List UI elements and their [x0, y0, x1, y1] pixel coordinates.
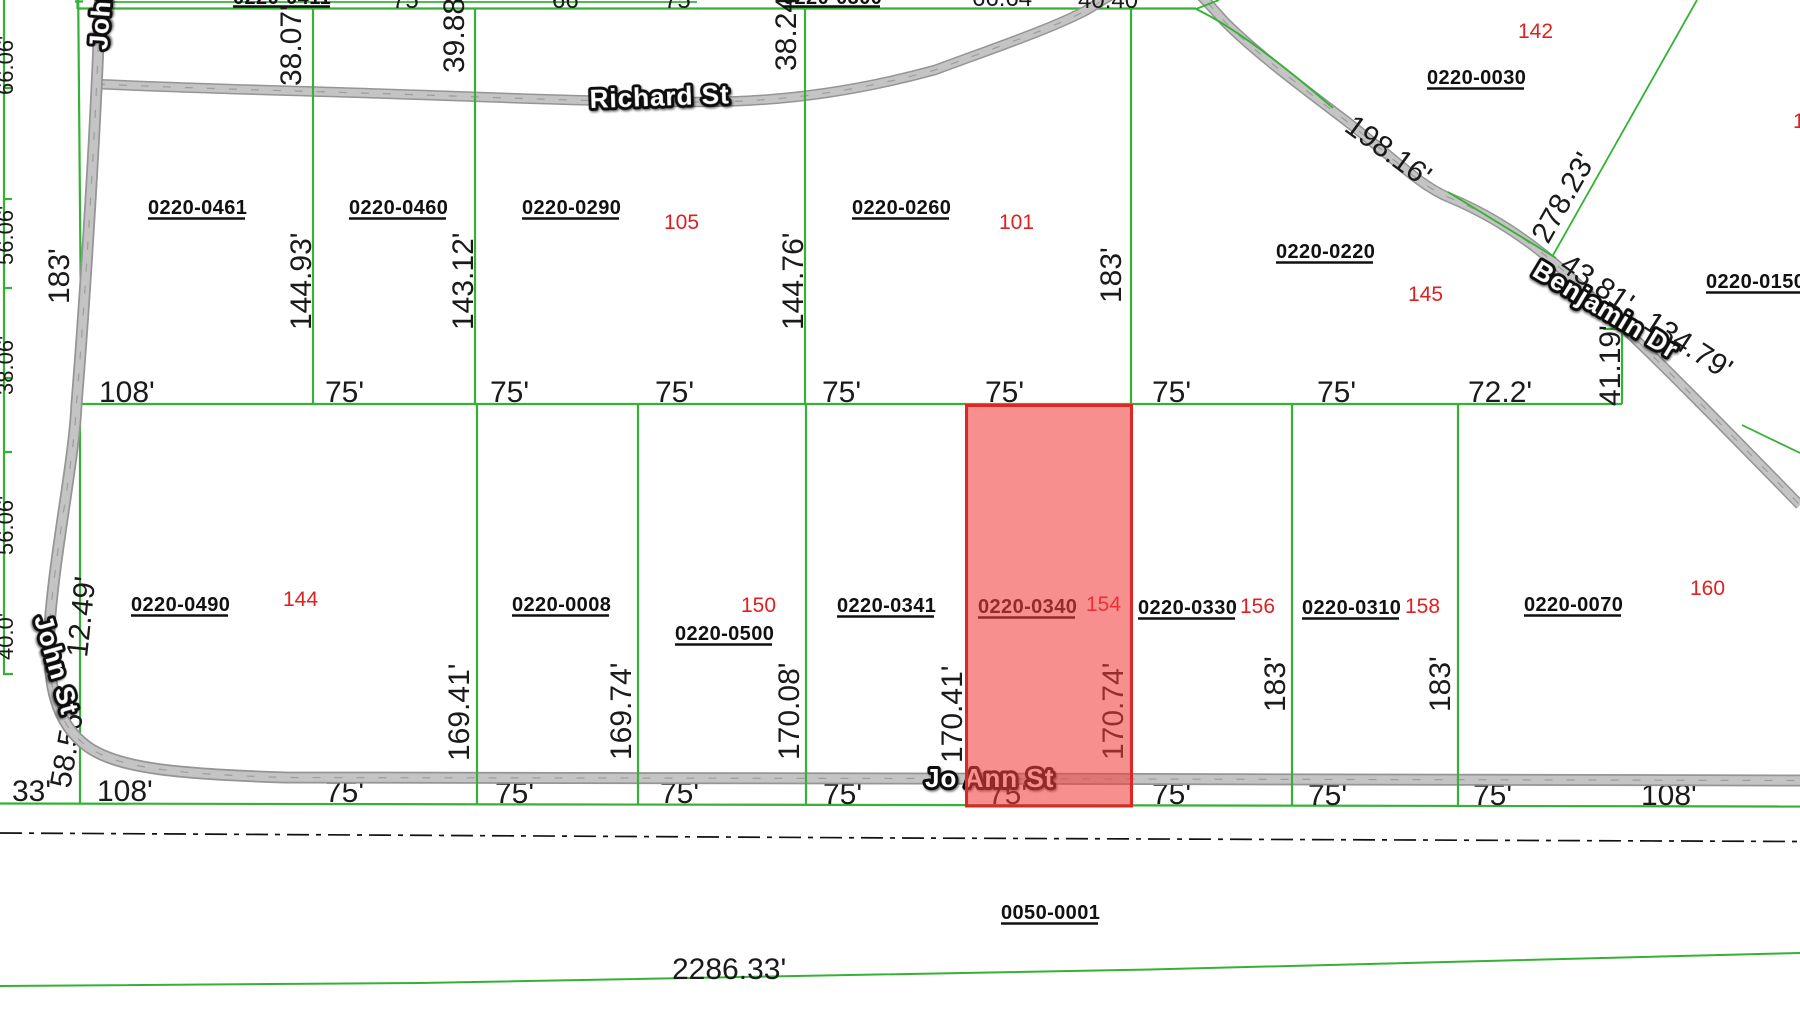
svg-text:170.08': 170.08'	[773, 663, 806, 761]
svg-text:0050-0001: 0050-0001	[1001, 902, 1100, 924]
svg-text:38.24': 38.24'	[770, 0, 803, 71]
svg-text:0220-0490: 0220-0490	[131, 594, 230, 616]
svg-text:144: 144	[283, 588, 318, 611]
svg-text:156: 156	[1240, 595, 1275, 618]
svg-text:40.0': 40.0'	[0, 613, 18, 660]
svg-text:33': 33'	[12, 775, 51, 808]
svg-text:183': 183'	[1424, 656, 1457, 712]
svg-text:56.06': 56.06'	[0, 206, 18, 265]
svg-text:0220-0220: 0220-0220	[1276, 241, 1375, 263]
svg-text:40.40': 40.40'	[1078, 0, 1143, 14]
svg-text:66.64': 66.64'	[972, 0, 1037, 12]
svg-text:160: 160	[1690, 577, 1725, 600]
svg-text:183': 183'	[43, 248, 76, 304]
svg-text:108': 108'	[99, 376, 155, 409]
svg-text:142: 142	[1518, 20, 1553, 43]
svg-text:75': 75'	[664, 0, 695, 14]
svg-text:38.06': 38.06'	[0, 336, 18, 395]
svg-text:169.41': 169.41'	[443, 664, 476, 762]
svg-text:66': 66'	[552, 0, 583, 14]
svg-text:39.88': 39.88'	[438, 0, 471, 73]
svg-text:38.07': 38.07'	[275, 5, 308, 86]
svg-text:56.06': 56.06'	[0, 496, 18, 555]
svg-text:101: 101	[999, 211, 1034, 234]
svg-text:0220-0070: 0220-0070	[1524, 594, 1623, 616]
svg-text:183': 183'	[1095, 247, 1128, 303]
svg-text:158: 158	[1405, 595, 1440, 618]
svg-text:72.2': 72.2'	[1468, 376, 1532, 409]
svg-text:41.19': 41.19'	[1594, 325, 1627, 406]
svg-text:2286.33': 2286.33'	[672, 953, 786, 986]
svg-text:Richard St: Richard St	[589, 79, 730, 114]
svg-text:170.41': 170.41'	[936, 666, 969, 764]
svg-text:0220-0290: 0220-0290	[522, 197, 621, 219]
svg-text:108': 108'	[97, 775, 153, 808]
svg-text:75': 75'	[1317, 376, 1356, 409]
svg-text:75': 75'	[822, 376, 861, 409]
svg-text:66.06': 66.06'	[0, 36, 18, 95]
svg-text:0220-0500: 0220-0500	[675, 623, 774, 645]
svg-text:0220-0310: 0220-0310	[1302, 597, 1401, 619]
svg-text:150: 150	[741, 594, 776, 617]
svg-text:0220-0008: 0220-0008	[512, 594, 611, 616]
svg-text:0220-0341: 0220-0341	[837, 595, 936, 617]
svg-text:14: 14	[1793, 110, 1800, 133]
svg-text:0220-0460: 0220-0460	[349, 197, 448, 219]
svg-text:0220-0330: 0220-0330	[1138, 597, 1237, 619]
svg-text:105: 105	[664, 211, 699, 234]
svg-text:145: 145	[1408, 283, 1443, 306]
svg-text:75': 75'	[490, 376, 529, 409]
svg-text:0220-0030: 0220-0030	[1427, 67, 1526, 89]
svg-text:75': 75'	[655, 376, 694, 409]
svg-text:0220-0150: 0220-0150	[1706, 271, 1800, 293]
svg-text:0220-0461: 0220-0461	[148, 197, 247, 219]
svg-text:75': 75'	[392, 0, 423, 14]
svg-text:75': 75'	[1152, 376, 1191, 409]
svg-text:0220-0260: 0220-0260	[852, 197, 951, 219]
svg-text:75': 75'	[325, 376, 364, 409]
svg-text:183': 183'	[1259, 656, 1292, 712]
svg-text:169.74': 169.74'	[605, 663, 638, 761]
